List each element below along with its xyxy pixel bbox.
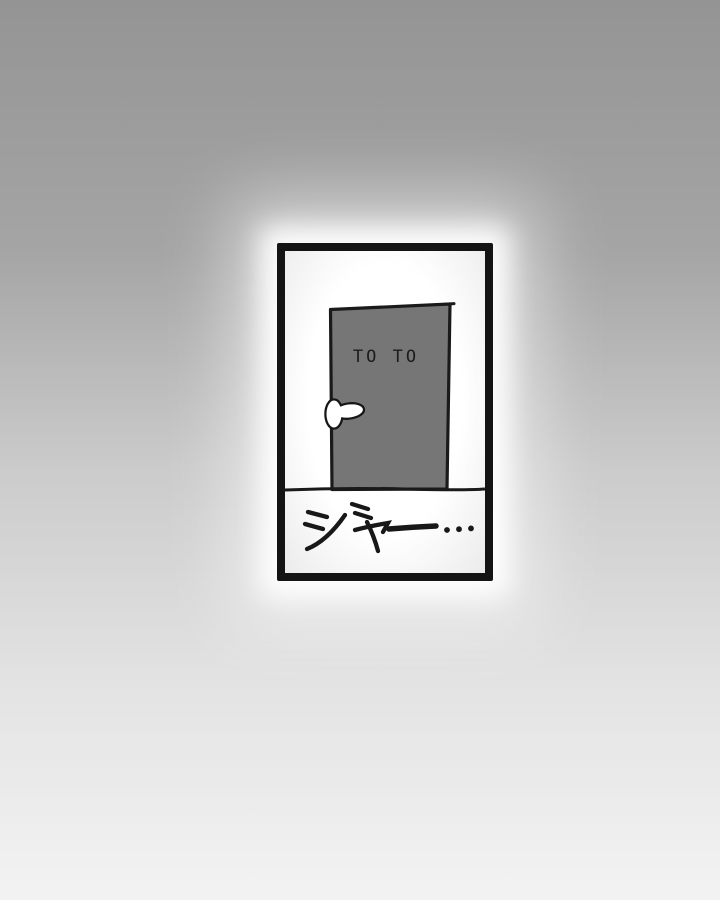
comic-panel: TO TO	[277, 243, 493, 581]
sfx-dot-1	[444, 527, 450, 533]
sfx-ji-tick-1	[308, 512, 327, 517]
sfx-ji-tick-2	[305, 524, 323, 529]
toilet-door	[331, 304, 451, 490]
sfx-ji-sweep	[307, 515, 345, 549]
sfx-dot-3	[468, 526, 474, 532]
sfx-dakuten-1	[352, 504, 368, 509]
sound-effect-lettering	[305, 504, 474, 551]
door-label: TO TO	[353, 347, 419, 367]
sfx-dot-2	[456, 526, 462, 532]
page-background: TO TO	[0, 0, 720, 900]
panel-artwork: TO TO	[285, 251, 485, 573]
door-corner-stroke	[445, 304, 454, 305]
floor-line	[285, 488, 485, 490]
sfx-long-dash	[389, 526, 436, 529]
sfx-dakuten-2	[355, 513, 371, 518]
